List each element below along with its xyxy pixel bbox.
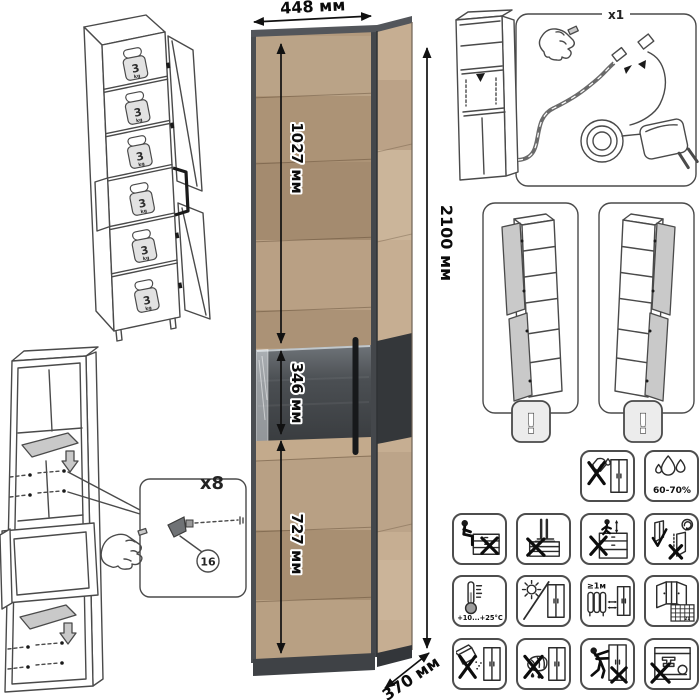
door-handle xyxy=(353,337,359,455)
wardrobe-glyph xyxy=(548,648,564,680)
icon-no-heavy-objects xyxy=(644,638,699,690)
lower-door-dimension-label: 727 мм xyxy=(288,513,306,574)
led-kit-diagram: x1 xyxy=(452,8,700,190)
upper-door-dimension-label: 1027 мм xyxy=(288,122,306,194)
led-kit-count-label: x1 xyxy=(608,8,624,22)
warning-badge: ! xyxy=(512,401,550,442)
care-icons-grid: 60-70% xyxy=(448,446,700,696)
front-frame-right xyxy=(371,31,377,657)
door-variant-left-panel xyxy=(483,203,578,413)
icon-no-sharp-tools xyxy=(580,450,635,502)
warning-mark: ! xyxy=(525,409,537,440)
door-variants-diagram: ! ! xyxy=(478,195,700,447)
icon-temperature-range: +10...+25°C xyxy=(452,575,507,627)
wardrobe-glyph xyxy=(610,460,626,492)
width-dimension-label: 448 мм xyxy=(280,0,346,18)
wardrobe-glyph xyxy=(483,648,499,680)
humidity-label: 60-70% xyxy=(653,486,691,496)
icon-no-sitting xyxy=(452,513,507,565)
warning-mark: ! xyxy=(637,409,649,440)
door-variant-right-panel xyxy=(599,203,694,413)
niche-glass-side xyxy=(256,350,268,448)
wardrobe-glyph xyxy=(617,587,629,616)
front-frame-left xyxy=(251,36,256,663)
led-kit-panel xyxy=(516,14,696,186)
calendar-day: 21 xyxy=(684,616,690,621)
icon-no-abrasives xyxy=(452,638,507,690)
icon-heater-distance: ≥1м xyxy=(580,575,635,627)
icon-no-climbing xyxy=(580,513,635,565)
temperature-label: +10...+25°C xyxy=(457,614,503,622)
product-sheet: 3 kg xyxy=(0,0,700,700)
heater-distance-label: ≥1м xyxy=(587,581,606,591)
icon-no-direct-sunlight xyxy=(516,575,571,627)
icon-no-wet-cloth xyxy=(516,638,571,690)
icon-humidity-range: 60-70% xyxy=(644,450,699,502)
calendar-glyph: 21 xyxy=(671,605,694,621)
icon-no-dragging xyxy=(580,638,635,690)
icon-no-standing xyxy=(516,513,571,565)
icon-ventilation-calendar: 21 xyxy=(644,575,699,627)
icon-door-adjustment xyxy=(644,513,699,565)
niche-dimension-label: 346 мм xyxy=(288,362,306,423)
height-dimension-label: 2100 мм xyxy=(437,205,456,281)
warning-badge: ! xyxy=(624,401,662,442)
wardrobe-glyph xyxy=(547,585,563,617)
